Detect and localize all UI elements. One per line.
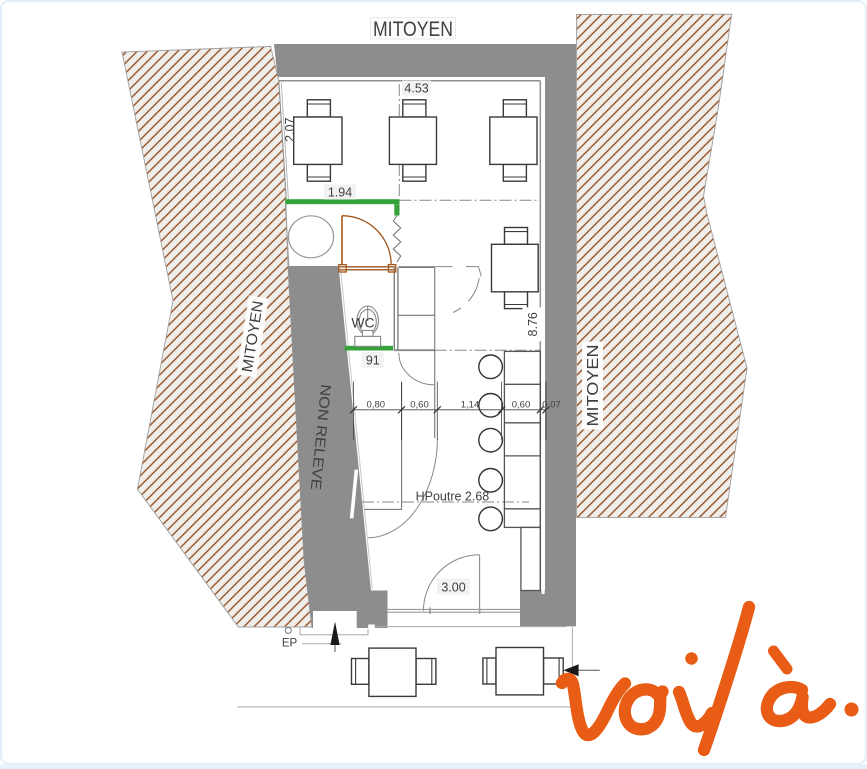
svg-text:MITOYEN: MITOYEN	[373, 18, 453, 41]
svg-text:4.53: 4.53	[404, 82, 428, 96]
svg-text:0,07: 0,07	[542, 400, 561, 411]
svg-text:0,80: 0,80	[367, 400, 386, 411]
svg-text:3.00: 3.00	[441, 580, 465, 594]
svg-text:WC: WC	[351, 315, 374, 331]
svg-text:MITOYEN: MITOYEN	[585, 345, 602, 427]
svg-text:1.94: 1.94	[328, 186, 352, 200]
svg-text:2.07: 2.07	[283, 117, 297, 141]
svg-text:91: 91	[366, 353, 380, 367]
svg-text:8.76: 8.76	[526, 312, 540, 336]
svg-text:1,14: 1,14	[461, 400, 480, 411]
svg-text:0,60: 0,60	[410, 400, 429, 411]
svg-text:0,60: 0,60	[512, 400, 531, 411]
svg-text:EP: EP	[282, 638, 298, 650]
svg-text:HPoutre 2.68: HPoutre 2.68	[416, 490, 490, 504]
